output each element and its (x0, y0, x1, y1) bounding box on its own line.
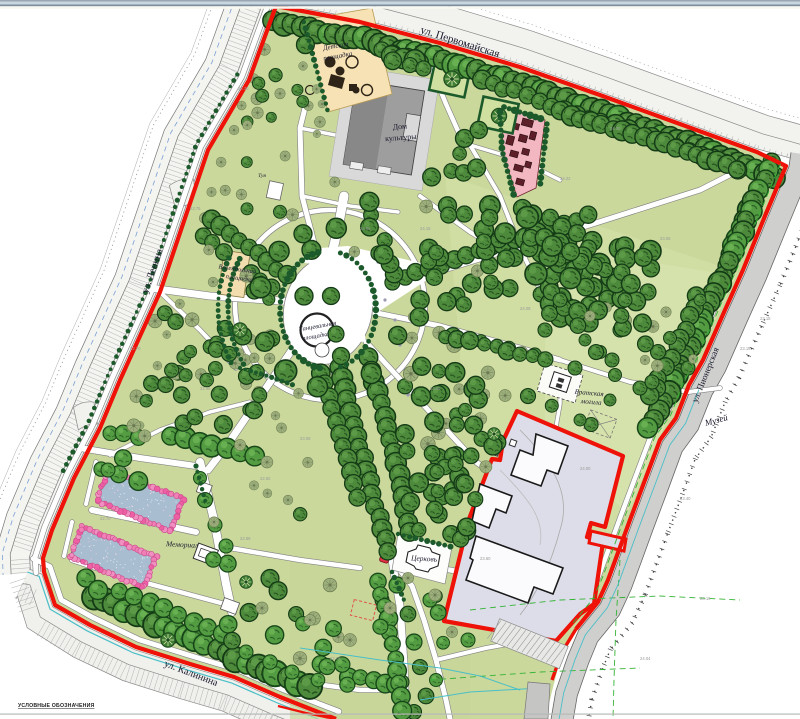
svg-text:24.04: 24.04 (640, 656, 651, 661)
svg-text:22.88: 22.88 (240, 536, 251, 541)
svg-text:24.30: 24.30 (238, 86, 249, 91)
svg-text:24.00: 24.00 (580, 466, 591, 471)
svg-text:23.18: 23.18 (740, 346, 751, 351)
svg-text:Мемориал: Мемориал (165, 539, 199, 550)
svg-text:УСЛОВНЫЕ ОБОЗНАЧЕНИЯ: УСЛОВНЫЕ ОБОЗНАЧЕНИЯ (18, 703, 95, 709)
svg-text:23.40: 23.40 (680, 496, 691, 501)
svg-text:22.78: 22.78 (330, 656, 341, 661)
svg-text:24.30: 24.30 (610, 126, 621, 131)
svg-text:22.60: 22.60 (120, 466, 131, 471)
svg-text:Туя: Туя (258, 173, 266, 179)
svg-text:22.92: 22.92 (260, 476, 271, 481)
svg-text:22.75: 22.75 (190, 206, 201, 211)
svg-text:23.60: 23.60 (480, 556, 491, 561)
svg-text:24.15: 24.15 (420, 226, 431, 231)
svg-text:23.18: 23.18 (760, 316, 771, 321)
svg-text:22.70: 22.70 (100, 516, 111, 521)
svg-text:Дом: Дом (392, 122, 407, 132)
svg-text:24.22: 24.22 (560, 176, 571, 181)
svg-text:23.85: 23.85 (430, 386, 441, 391)
svg-text:23.05: 23.05 (660, 236, 671, 241)
svg-text:22.70: 22.70 (130, 346, 141, 351)
svg-text:24.08: 24.08 (520, 306, 531, 311)
svg-text:23.08: 23.08 (300, 436, 311, 441)
svg-text:24.05: 24.05 (360, 226, 371, 231)
svg-text:Церковь: Церковь (410, 553, 438, 563)
svg-text:23.10: 23.10 (700, 596, 711, 601)
svg-text:22.95: 22.95 (200, 386, 211, 391)
